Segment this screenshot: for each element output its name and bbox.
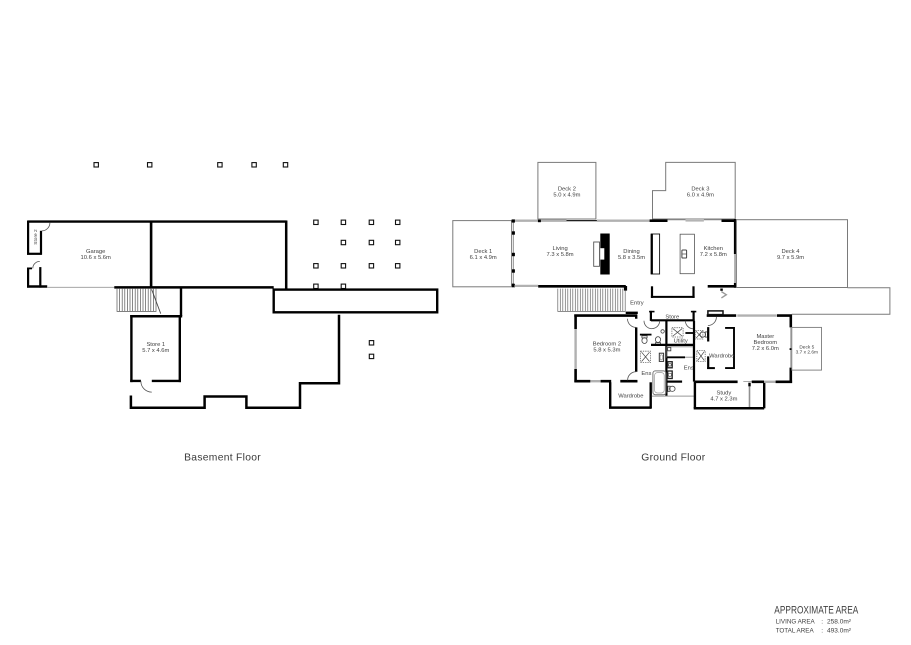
svg-text:7.3 x 5.8m: 7.3 x 5.8m xyxy=(547,252,574,258)
svg-text:5.7 x 4.6m: 5.7 x 4.6m xyxy=(142,348,169,354)
svg-text:4.7 x 2.3m: 4.7 x 2.3m xyxy=(710,396,737,402)
svg-text:Ens: Ens xyxy=(641,371,651,377)
svg-text:Basement Floor: Basement Floor xyxy=(184,453,261,464)
svg-text:Master: Master xyxy=(756,334,774,340)
svg-text::: : xyxy=(821,628,823,635)
svg-text:5.8 x 3.5m: 5.8 x 3.5m xyxy=(618,255,645,261)
svg-text:10.6 x 5.6m: 10.6 x 5.6m xyxy=(81,255,111,261)
svg-text:493.0m²: 493.0m² xyxy=(827,628,852,635)
svg-text:Store 2: Store 2 xyxy=(33,229,39,245)
svg-text:Bedroom: Bedroom xyxy=(754,340,778,346)
svg-text:6.1 x 4.9m: 6.1 x 4.9m xyxy=(470,255,497,261)
svg-text:Ens: Ens xyxy=(684,366,694,372)
svg-text:Store: Store xyxy=(665,314,679,320)
svg-text:APPROXIMATE AREA: APPROXIMATE AREA xyxy=(774,605,859,617)
svg-text:3.7 x 2.6m: 3.7 x 2.6m xyxy=(796,350,818,356)
svg-text:Deck 5: Deck 5 xyxy=(799,344,814,350)
svg-text:258.0m²: 258.0m² xyxy=(827,618,852,625)
svg-text:7.2 x 6.0m: 7.2 x 6.0m xyxy=(752,346,779,352)
svg-text:9.7 x 5.9m: 9.7 x 5.9m xyxy=(777,255,804,261)
svg-text:Utility: Utility xyxy=(674,339,688,345)
svg-text:5.0 x 4.9m: 5.0 x 4.9m xyxy=(553,192,580,198)
svg-text:LIVING AREA: LIVING AREA xyxy=(776,618,816,625)
svg-text::: : xyxy=(821,618,823,625)
svg-text:Wardrobe: Wardrobe xyxy=(709,354,734,360)
svg-text:5.8 x 5.3m: 5.8 x 5.3m xyxy=(593,347,620,353)
svg-text:Entry: Entry xyxy=(630,301,644,307)
svg-text:6.0 x 4.9m: 6.0 x 4.9m xyxy=(687,192,714,198)
svg-text:Ground Floor: Ground Floor xyxy=(641,453,706,464)
svg-text:Wardrobe: Wardrobe xyxy=(618,393,643,399)
svg-text:TOTAL AREA: TOTAL AREA xyxy=(776,628,815,635)
svg-text:7.2 x 5.8m: 7.2 x 5.8m xyxy=(700,252,727,258)
